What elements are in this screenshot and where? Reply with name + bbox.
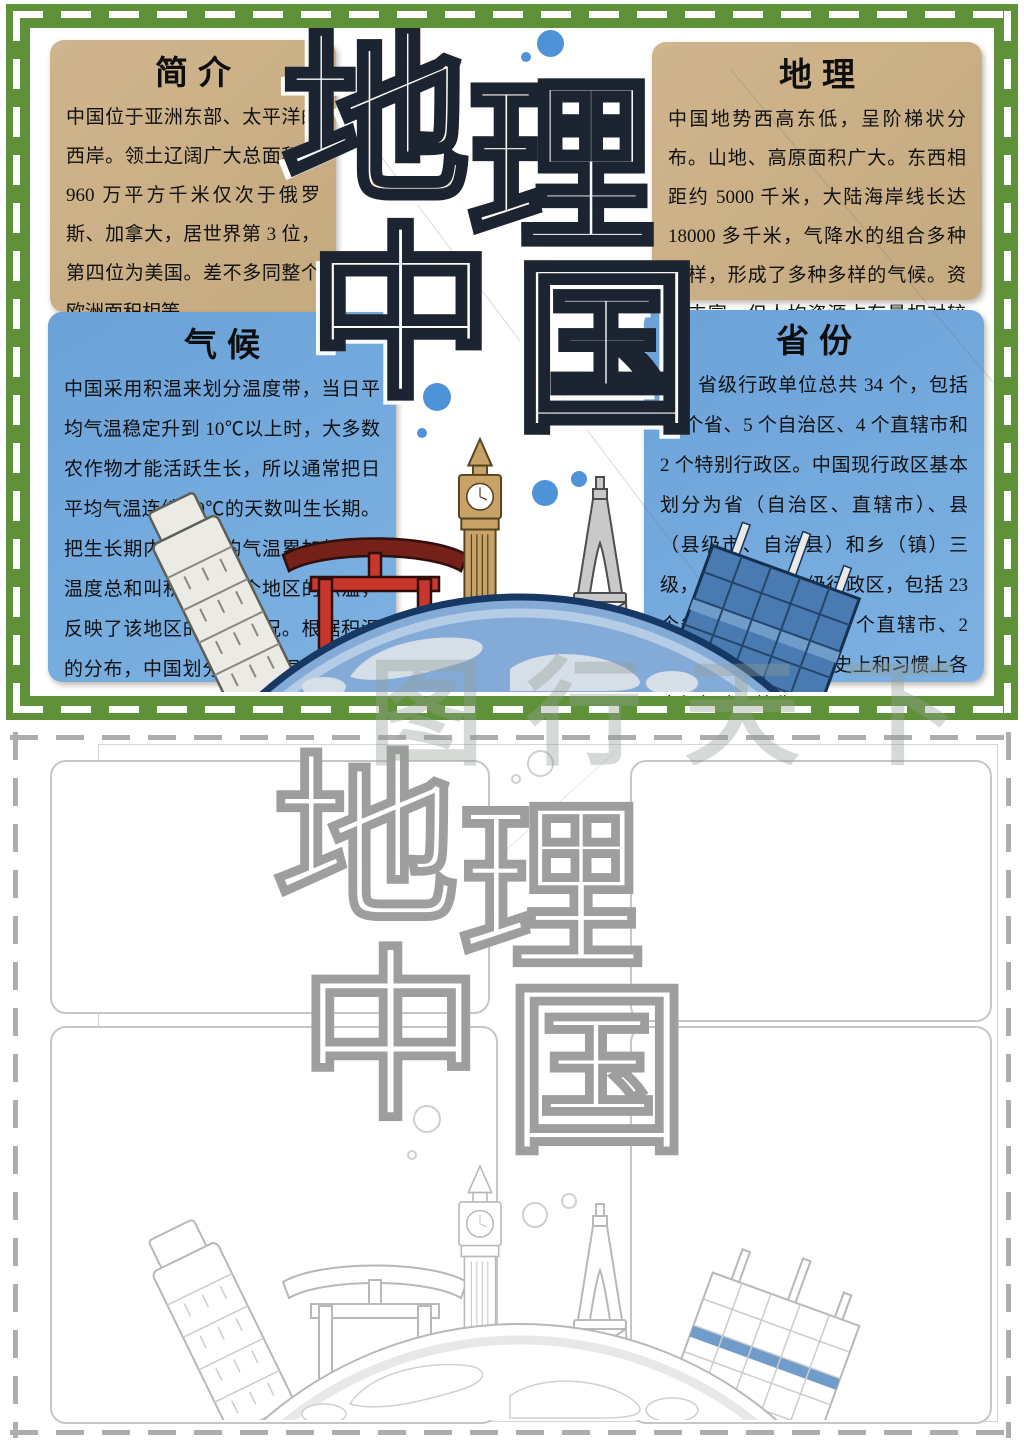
title-char-guo: 国 (514, 258, 700, 444)
landmarks-scene (40, 426, 984, 692)
section-intro-text: 中国位于亚洲东部、太平洋的西岸。领土辽阔广大总面积约 960 万平方千米仅次于俄… (66, 98, 320, 332)
title-char-di: 地 (283, 28, 469, 214)
color-poster: 简介 中国位于亚洲东部、太平洋的西岸。领土辽阔广大总面积约 960 万平方千米仅… (6, 4, 1018, 720)
pisa-tower-icon (138, 1214, 330, 1420)
section-provinces-title: 省份 (656, 314, 972, 362)
color-poster-content: 简介 中国位于亚洲东部、太平洋的西岸。领土辽阔广大总面积约 960 万平方千米仅… (30, 28, 994, 696)
outline-poster-content: 地 理 中 国 (10, 732, 1014, 1438)
outline-title-char-di: 地 (273, 750, 459, 936)
outline-title-char-zhong: 中 (298, 946, 484, 1132)
decor-dot-outline (511, 774, 521, 784)
title-char-zhong: 中 (308, 224, 494, 410)
outline-title-char-li: 理 (458, 798, 644, 984)
decor-dot-outline (527, 750, 554, 777)
handout-page: 简介 中国位于亚洲东部、太平洋的西岸。领土辽阔广大总面积约 960 万平方千米仅… (0, 0, 1024, 1448)
outline-title-char-guo: 国 (504, 980, 690, 1166)
decor-dot (537, 30, 564, 57)
title-char-li: 理 (468, 76, 654, 262)
coloring-outline-poster: 地 理 中 国 (10, 732, 1014, 1438)
decor-dot (521, 52, 531, 62)
landmarks-illustration (40, 426, 984, 692)
landmarks-outline-illustration (40, 1152, 984, 1420)
landmarks-scene (40, 1152, 984, 1420)
section-geography-title: 地理 (664, 48, 970, 96)
